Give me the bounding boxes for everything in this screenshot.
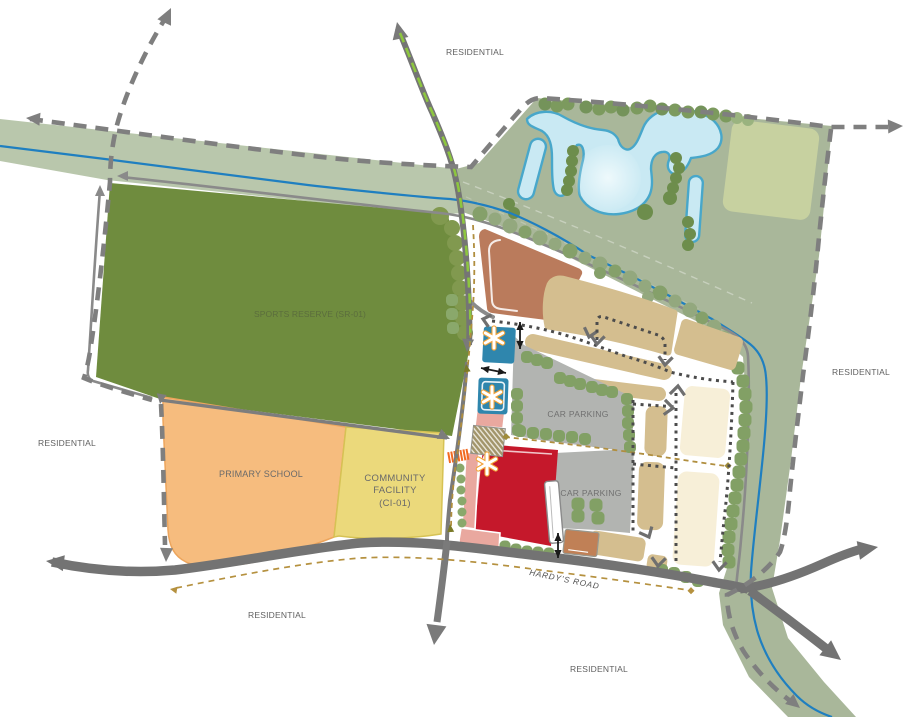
svg-text:RESIDENTIAL: RESIDENTIAL xyxy=(38,438,96,448)
svg-text:FACILITY: FACILITY xyxy=(373,485,417,496)
svg-text:RESIDENTIAL: RESIDENTIAL xyxy=(570,664,628,674)
svg-text:CAR PARKING: CAR PARKING xyxy=(547,409,608,419)
svg-text:(CI-01): (CI-01) xyxy=(379,498,411,509)
svg-text:RESIDENTIAL: RESIDENTIAL xyxy=(248,610,306,620)
svg-text:PRIMARY SCHOOL: PRIMARY SCHOOL xyxy=(219,469,303,479)
svg-text:CAR PARKING: CAR PARKING xyxy=(560,488,621,498)
svg-text:RESIDENTIAL: RESIDENTIAL xyxy=(446,47,504,57)
svg-text:RESIDENTIAL: RESIDENTIAL xyxy=(832,367,890,377)
svg-text:COMMUNITY: COMMUNITY xyxy=(364,473,426,484)
svg-text:SPORTS RESERVE (SR-01): SPORTS RESERVE (SR-01) xyxy=(254,309,366,319)
